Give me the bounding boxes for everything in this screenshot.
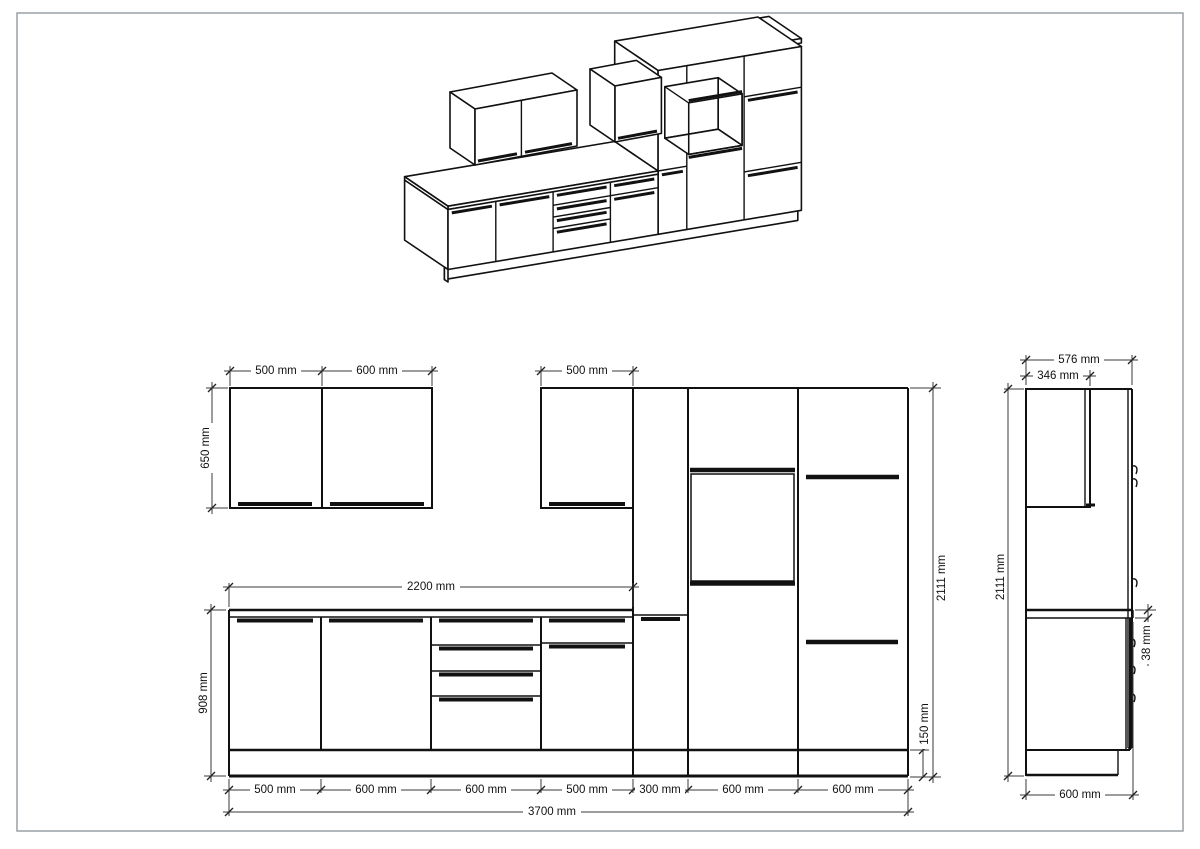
- technical-drawing: 500 mm 600 mm 500 mm 650 mm 2200 mm 908 …: [0, 0, 1200, 849]
- svg-text:2200 mm: 2200 mm: [407, 581, 455, 593]
- dim-label-unit-width: 300 mm: [635, 784, 685, 797]
- dim-label-wall-left-1: 500 mm: [251, 365, 301, 378]
- dim-label-unit-width: 600 mm: [828, 784, 878, 797]
- svg-text:500 mm: 500 mm: [566, 784, 608, 796]
- svg-text:908 mm: 908 mm: [198, 672, 210, 714]
- dim-label-worktop-thickness: 38 mm: [1141, 622, 1154, 664]
- dim-label-unit-width: 600 mm: [351, 784, 401, 797]
- dim-label-base-depth: 600 mm: [1055, 789, 1105, 802]
- dim-label-unit-width: 500 mm: [562, 784, 612, 797]
- dim-label-total-width: 3700 mm: [523, 806, 581, 819]
- svg-text:600 mm: 600 mm: [356, 365, 398, 377]
- svg-text:600 mm: 600 mm: [465, 784, 507, 796]
- svg-text:346 mm: 346 mm: [1037, 370, 1079, 382]
- dim-label-unit-width: 600 mm: [718, 784, 768, 797]
- wall-cabinet-500: [230, 388, 322, 508]
- svg-text:500 mm: 500 mm: [254, 784, 296, 796]
- dim-label-unit-width: 600 mm: [461, 784, 511, 797]
- svg-text:3700 mm: 3700 mm: [528, 806, 576, 818]
- svg-text:500 mm: 500 mm: [566, 365, 608, 377]
- dim-label-base-height: 908 mm: [198, 668, 211, 718]
- svg-text:600 mm: 600 mm: [832, 784, 874, 796]
- drawing-sheet: 500 mm 600 mm 500 mm 650 mm 2200 mm 908 …: [0, 0, 1200, 849]
- dim-label-wall-height: 650 mm: [200, 423, 213, 473]
- svg-text:2111 mm: 2111 mm: [995, 554, 1007, 600]
- dim-label-wall-left-2: 600 mm: [352, 365, 402, 378]
- svg-text:600 mm: 600 mm: [722, 784, 764, 796]
- dim-label-side-total-height: 2111 mm: [995, 548, 1008, 606]
- front-elevation: [229, 388, 908, 776]
- side-elevation: [1026, 389, 1137, 776]
- svg-text:2111 mm: 2111 mm: [936, 555, 948, 601]
- dim-label-counter-length: 2200 mm: [402, 581, 460, 594]
- svg-text:38 mm: 38 mm: [1141, 625, 1153, 660]
- dim-label-unit-width: 500 mm: [250, 784, 300, 797]
- svg-text:576 mm: 576 mm: [1058, 354, 1100, 366]
- dim-label-wall-mid: 500 mm: [562, 365, 612, 378]
- svg-text:150 mm: 150 mm: [919, 703, 931, 745]
- dim-label-plinth-height: 150 mm: [919, 699, 932, 749]
- isometric-view: [405, 16, 802, 282]
- svg-text:650 mm: 650 mm: [200, 427, 212, 469]
- svg-text:600 mm: 600 mm: [1059, 789, 1101, 801]
- svg-text:500 mm: 500 mm: [255, 365, 297, 377]
- wall-cabinet-600: [322, 388, 432, 508]
- svg-text:600 mm: 600 mm: [355, 784, 397, 796]
- dim-label-wall-depth: 346 mm: [1033, 370, 1083, 383]
- niche-back: [665, 78, 718, 139]
- wall-cabinet-side: [1026, 389, 1090, 507]
- dim-label-total-depth: 576 mm: [1054, 354, 1104, 367]
- oven-niche: [691, 474, 794, 581]
- dim-label-total-height: 2111 mm: [936, 549, 949, 607]
- wall-cabinet-mid-500: [541, 388, 633, 508]
- svg-text:300 mm: 300 mm: [639, 784, 681, 796]
